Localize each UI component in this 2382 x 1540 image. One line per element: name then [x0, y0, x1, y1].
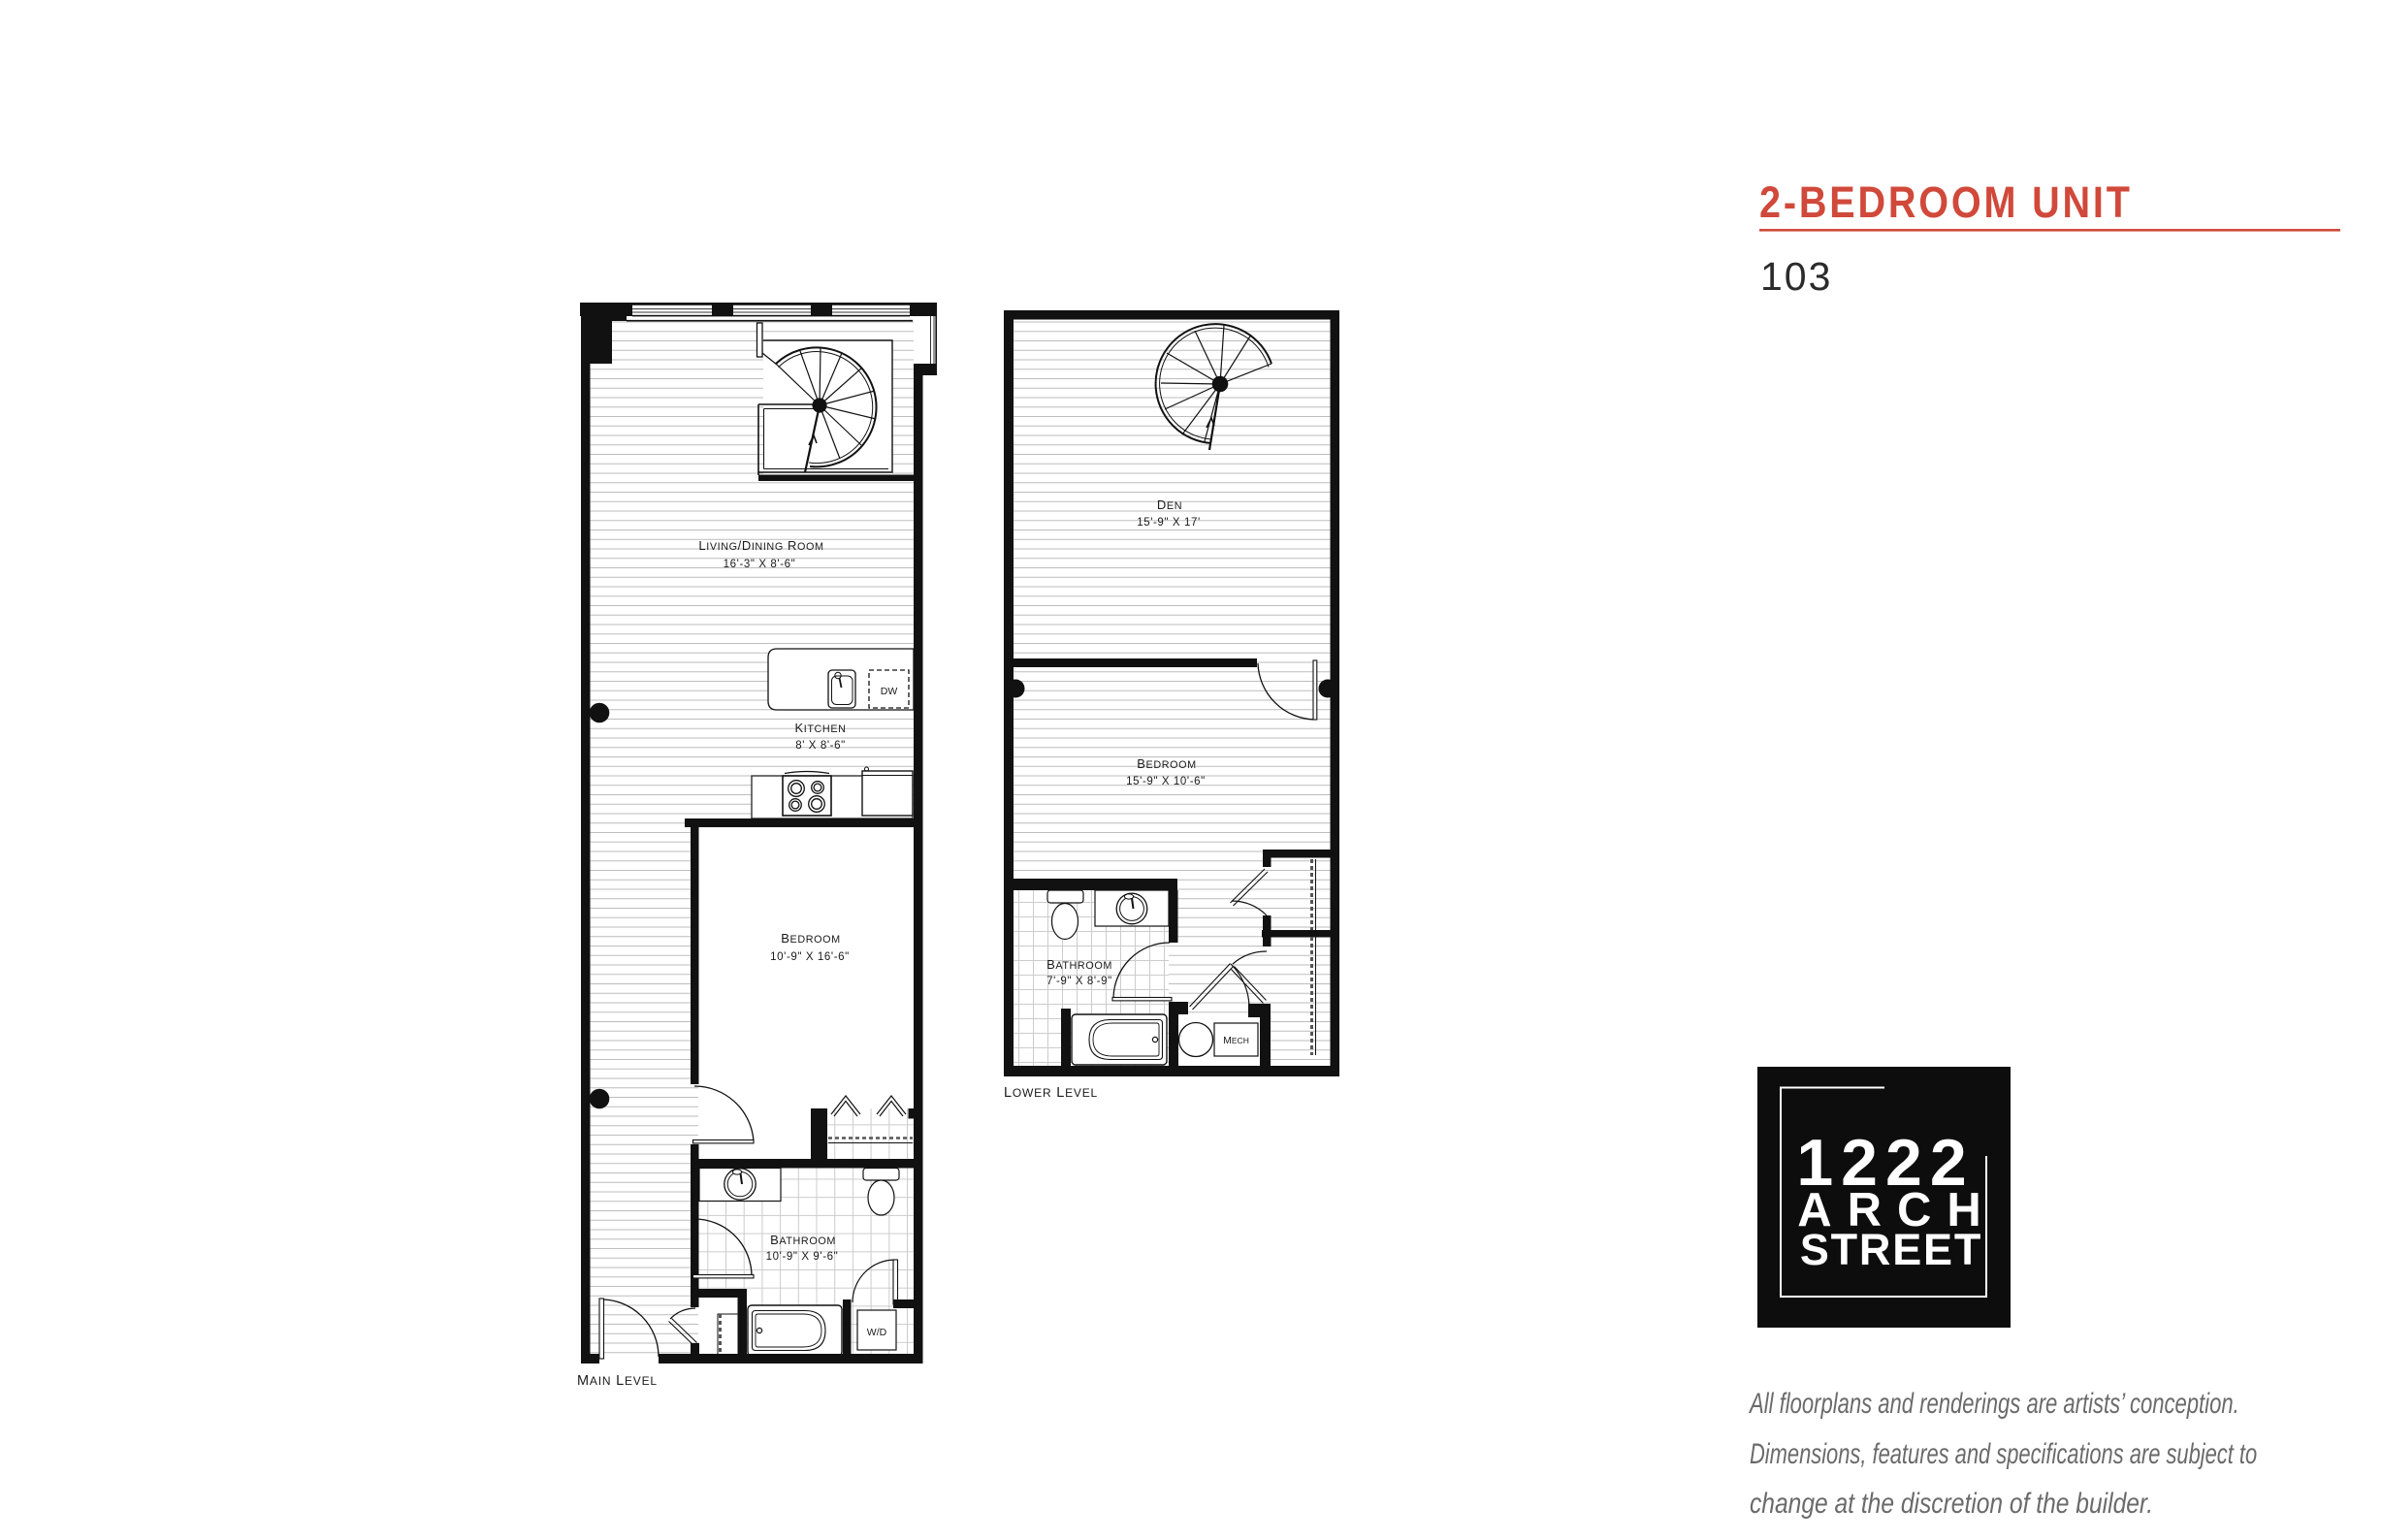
- svg-text:change at the discretion of th: change at the discretion of the builder.: [1750, 1487, 2153, 1520]
- svg-text:STREET: STREET: [1800, 1225, 1982, 1274]
- svg-text:Dimensions, features and speci: Dimensions, features and specifications …: [1750, 1437, 2257, 1470]
- svg-text:10'-9" X 16'-6": 10'-9" X 16'-6": [770, 951, 850, 963]
- svg-text:LOWER LEVEL: LOWER LEVEL: [1004, 1085, 1098, 1101]
- svg-text:MECH: MECH: [1223, 1035, 1249, 1046]
- svg-text:15'-9" X 17': 15'-9" X 17': [1137, 517, 1201, 529]
- svg-text:BEDROOM: BEDROOM: [781, 931, 840, 946]
- svg-text:BATHROOM: BATHROOM: [1046, 957, 1112, 972]
- svg-text:103: 103: [1760, 254, 1832, 299]
- svg-text:10'-9" X 9'-6": 10'-9" X 9'-6": [766, 1251, 839, 1263]
- svg-text:MAIN LEVEL: MAIN LEVEL: [577, 1373, 658, 1389]
- svg-text:DEN: DEN: [1157, 497, 1182, 512]
- svg-text:15'-9" X 10'-6": 15'-9" X 10'-6": [1126, 776, 1206, 787]
- svg-text:KITCHEN: KITCHEN: [794, 721, 846, 735]
- svg-text:2-BEDROOM UNIT: 2-BEDROOM UNIT: [1759, 178, 2133, 227]
- svg-text:LIVING/DINING ROOM: LIVING/DINING ROOM: [698, 538, 823, 553]
- svg-text:BATHROOM: BATHROOM: [770, 1233, 836, 1247]
- svg-text:DW: DW: [881, 686, 898, 697]
- svg-text:BEDROOM: BEDROOM: [1137, 756, 1196, 771]
- svg-text:All floorplans and renderings: All floorplans and renderings are artist…: [1748, 1387, 2238, 1420]
- svg-text:16'-3" X 8'-6": 16'-3" X 8'-6": [724, 559, 796, 570]
- svg-text:8' X 8'-6": 8' X 8'-6": [795, 740, 846, 752]
- svg-text:7'-9" X 8'-9": 7'-9" X 8'-9": [1046, 976, 1112, 987]
- svg-text:W/D: W/D: [867, 1327, 887, 1338]
